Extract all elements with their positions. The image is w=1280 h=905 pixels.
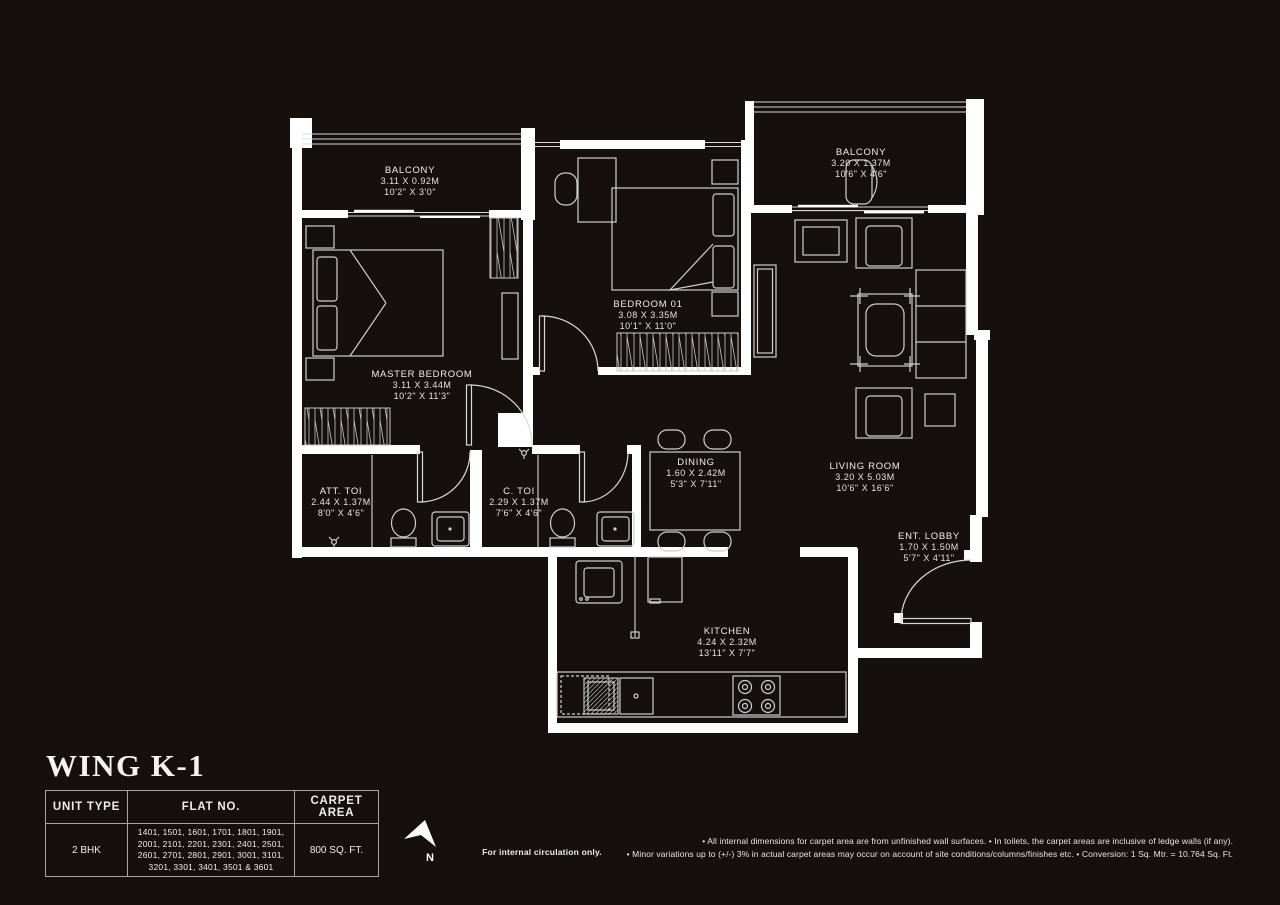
svg-text:10'6" X 4'6": 10'6" X 4'6" [835, 169, 887, 179]
floor-plan-page: BALCONY 3.11 X 0.92M 10'2" X 3'0" BALCON… [0, 0, 1280, 905]
room-label-kitchen: KITCHEN 4.24 X 2.32M 13'11" X 7'7" [697, 626, 757, 658]
svg-text:1.70 X 1.50M: 1.70 X 1.50M [899, 542, 959, 552]
disclaimer-line-2: • Minor variations up to (+/-) 3% in act… [613, 848, 1233, 861]
svg-text:DINING: DINING [677, 457, 714, 468]
north-arrow-icon: N [404, 820, 436, 864]
door-att-toi [418, 452, 471, 502]
svg-text:8'0" X 4'6": 8'0" X 4'6" [318, 508, 364, 518]
room-label-c-toi: C. TOI 2.29 X 1.37M 7'6" X 4'6" [489, 486, 549, 518]
col-header-flat-no: FLAT NO. [128, 791, 295, 824]
svg-text:4.24 X 2.32M: 4.24 X 2.32M [697, 637, 757, 647]
bedroom01-desk [555, 158, 616, 222]
svg-text:ATT. TOI: ATT. TOI [320, 486, 363, 497]
master-bed [306, 226, 518, 380]
svg-text:BEDROOM 01: BEDROOM 01 [613, 299, 682, 310]
page-title: WING K-1 [46, 748, 205, 784]
disclaimer-line-1: • All internal dimensions for carpet are… [613, 835, 1233, 848]
disclaimer: • All internal dimensions for carpet are… [613, 835, 1233, 861]
svg-text:BALCONY: BALCONY [385, 165, 435, 176]
table-row: 2 BHK 1401, 1501, 1601, 1701, 1801, 1901… [46, 824, 379, 877]
svg-text:ENT. LOBBY: ENT. LOBBY [898, 531, 960, 542]
svg-text:5'7" X 4'11": 5'7" X 4'11" [903, 553, 954, 563]
svg-text:MASTER BEDROOM: MASTER BEDROOM [371, 369, 472, 380]
svg-text:2.44 X 1.37M: 2.44 X 1.37M [311, 497, 371, 507]
north-label: N [426, 852, 434, 864]
svg-text:LIVING ROOM: LIVING ROOM [829, 461, 900, 472]
room-label-dining: DINING 1.60 X 2.42M 5'3" X 7'11" [666, 457, 726, 489]
room-label-master-bedroom: MASTER BEDROOM 3.11 X 3.44M 10'2" X 11'3… [371, 369, 472, 401]
unit-type-cell: 2 BHK [46, 824, 128, 877]
door-c-toi [580, 452, 629, 502]
room-label-bedroom-01: BEDROOM 01 3.08 X 3.35M 10'1" X 11'0" [613, 299, 682, 331]
svg-text:3.08 X 3.35M: 3.08 X 3.35M [618, 310, 678, 320]
svg-text:KITCHEN: KITCHEN [704, 626, 751, 637]
carpet-area-cell: 800 SQ. FT. [295, 824, 379, 877]
bedroom01-bed [612, 160, 738, 316]
balcony-railings [302, 102, 966, 144]
col-header-unit-type: UNIT TYPE [46, 791, 128, 824]
svg-text:1.60 X 2.42M: 1.60 X 2.42M [666, 468, 726, 478]
living-room-furniture [754, 218, 966, 438]
col-header-carpet-area: CARPET AREA [295, 791, 379, 824]
room-label-balcony-right: BALCONY 3.20 X 1.37M 10'6" X 4'6" [831, 147, 891, 179]
svg-text:10'6" X 16'6": 10'6" X 16'6" [836, 483, 893, 493]
table-header-row: UNIT TYPE FLAT NO. CARPET AREA [46, 791, 379, 824]
svg-text:3.20 X 5.03M: 3.20 X 5.03M [835, 472, 895, 482]
room-label-balcony-left: BALCONY 3.11 X 0.92M 10'2" X 3'0" [381, 165, 440, 197]
svg-text:5'3" X 7'11": 5'3" X 7'11" [670, 479, 721, 489]
unit-summary-table: UNIT TYPE FLAT NO. CARPET AREA 2 BHK 140… [45, 790, 379, 877]
flat-no-cell: 1401, 1501, 1601, 1701, 1801, 1901, 2001… [128, 824, 295, 877]
svg-text:10'2" X 3'0": 10'2" X 3'0" [384, 187, 436, 197]
door-bedroom-01 [540, 316, 599, 371]
svg-text:BALCONY: BALCONY [836, 147, 886, 158]
room-label-att-toi: ATT. TOI 2.44 X 1.37M 8'0" X 4'6" [311, 486, 371, 518]
svg-text:10'1" X 11'0": 10'1" X 11'0" [620, 321, 677, 331]
svg-text:10'2" X 11'3": 10'2" X 11'3" [394, 391, 451, 401]
dining-set [650, 430, 740, 551]
svg-text:13'11" X 7'7": 13'11" X 7'7" [699, 648, 756, 658]
svg-text:3.20 X 1.37M: 3.20 X 1.37M [831, 158, 891, 168]
room-label-living-room: LIVING ROOM 3.20 X 5.03M 10'6" X 16'6" [829, 461, 900, 493]
room-label-ent-lobby: ENT. LOBBY 1.70 X 1.50M 5'7" X 4'11" [898, 531, 960, 563]
svg-text:3.11 X 0.92M: 3.11 X 0.92M [381, 176, 440, 186]
svg-text:2.29 X 1.37M: 2.29 X 1.37M [489, 497, 549, 507]
circulation-note: For internal circulation only. [452, 847, 632, 857]
svg-text:3.11 X 3.44M: 3.11 X 3.44M [393, 380, 452, 390]
svg-text:7'6" X 4'6": 7'6" X 4'6" [496, 508, 542, 518]
svg-text:C. TOI: C. TOI [503, 486, 535, 497]
